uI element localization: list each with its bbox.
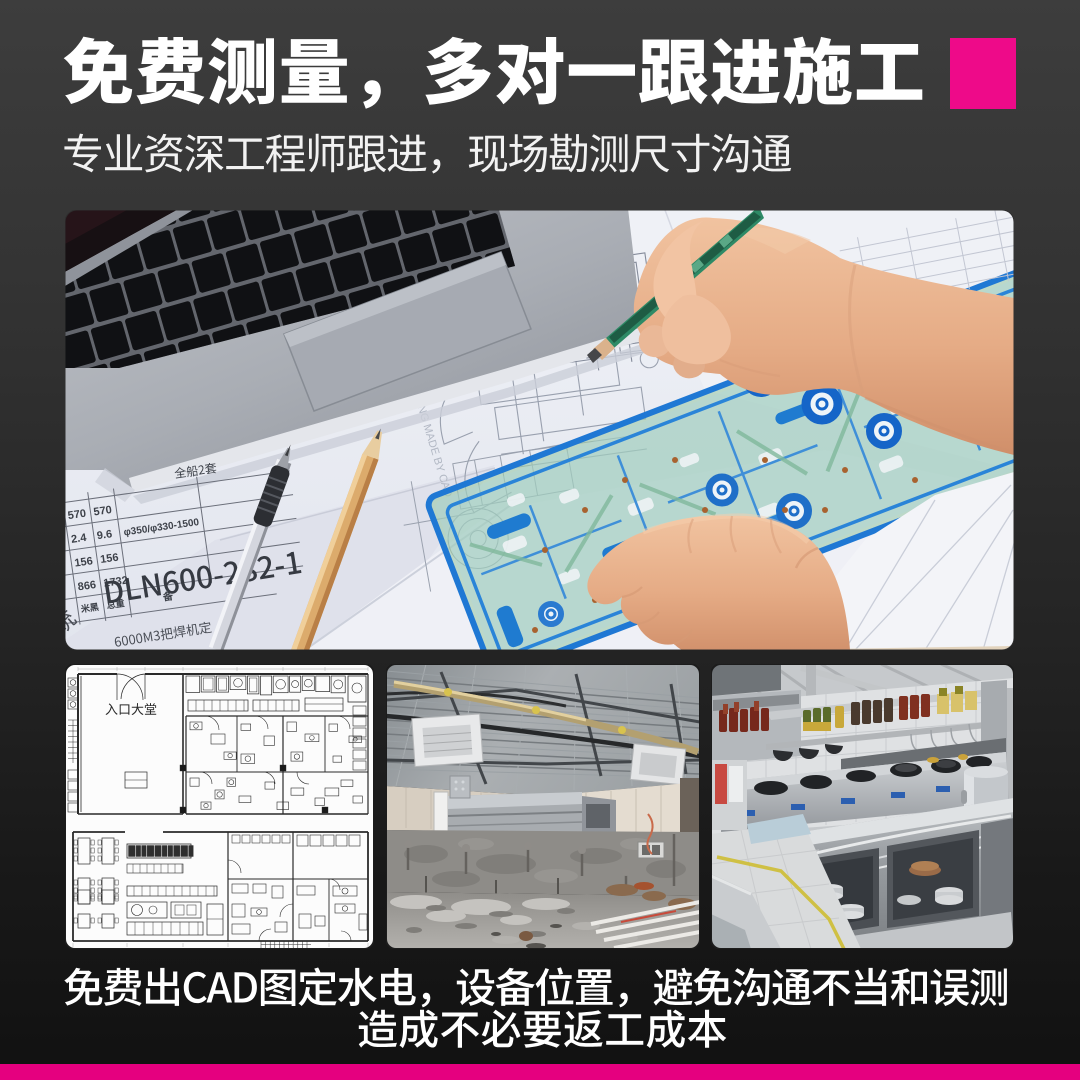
svg-text:156: 156 xyxy=(74,555,94,569)
svg-text:570: 570 xyxy=(93,504,113,518)
svg-text:156: 156 xyxy=(99,552,119,566)
svg-text:2.4: 2.4 xyxy=(70,532,88,546)
svg-text:9.6: 9.6 xyxy=(96,528,113,542)
svg-text:570: 570 xyxy=(67,508,87,522)
svg-text:866: 866 xyxy=(77,579,97,593)
